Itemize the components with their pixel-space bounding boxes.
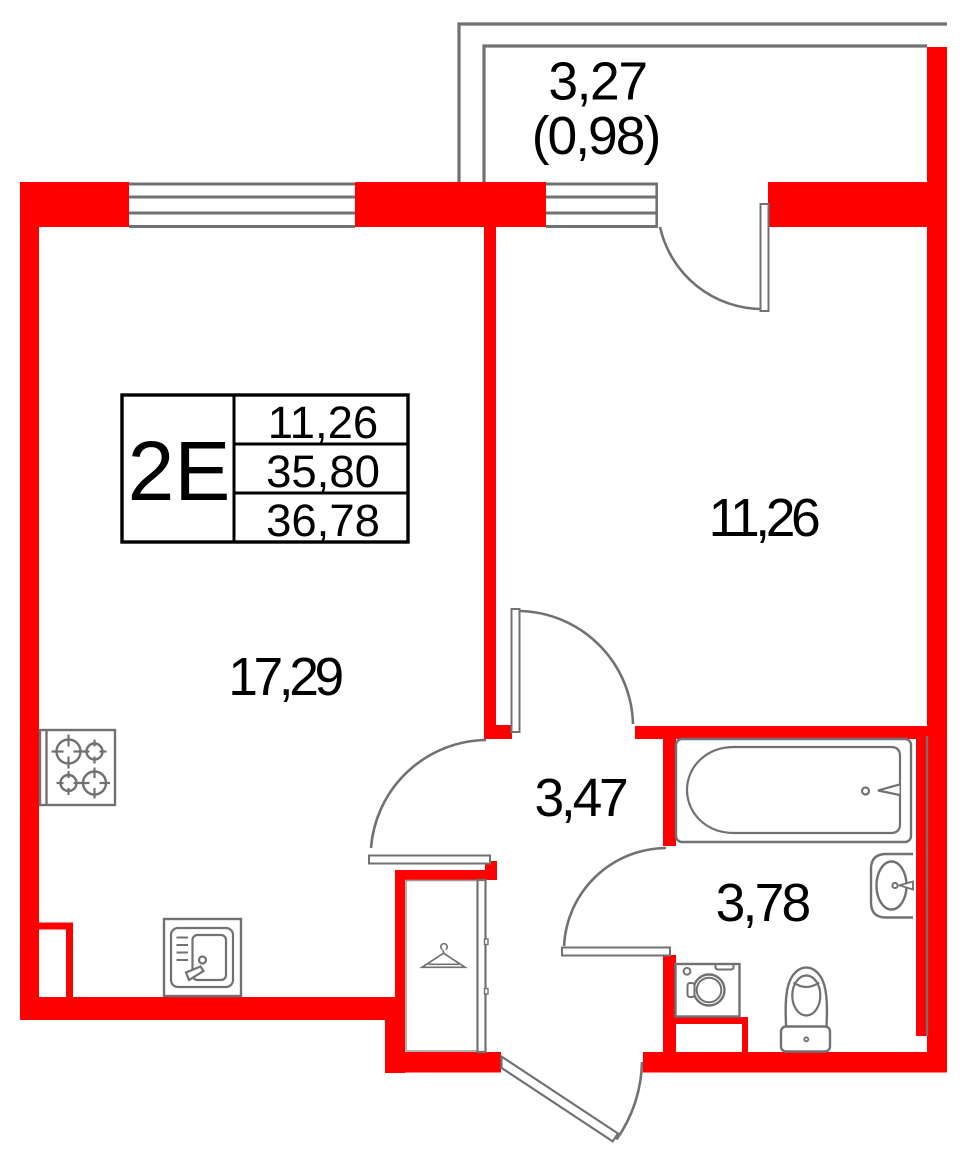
svg-text:17,29: 17,29: [228, 648, 342, 707]
svg-text:2E: 2E: [128, 424, 231, 518]
svg-text:36,78: 36,78: [266, 495, 380, 546]
svg-text:3,47: 3,47: [534, 769, 627, 828]
svg-text:(0,98): (0,98): [532, 107, 659, 166]
svg-text:11,26: 11,26: [709, 489, 819, 548]
svg-text:3,78: 3,78: [716, 874, 810, 933]
svg-text:3,27: 3,27: [548, 53, 646, 112]
svg-text:11,26: 11,26: [268, 397, 378, 448]
svg-text:35,80: 35,80: [266, 446, 380, 497]
